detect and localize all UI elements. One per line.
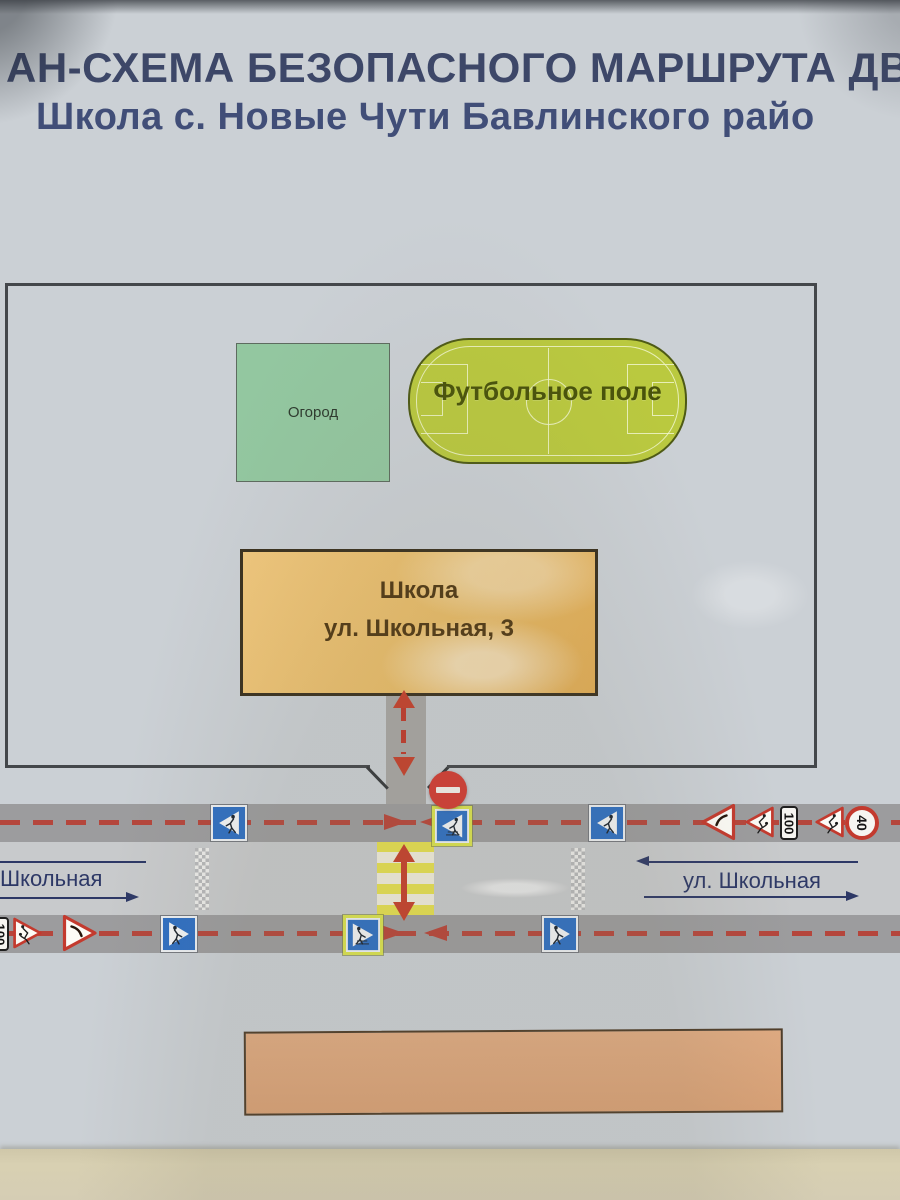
- street-arrow-right-icon: [126, 892, 139, 902]
- route-scheme-poster-photo: АН-СХЕМА БЕЗОПАСНОГО МАРШРУТА ДВ Школа с…: [0, 0, 900, 1200]
- checker-strip-right: [571, 848, 585, 910]
- distance-plate-100: 100: [0, 917, 9, 951]
- street-line-left-top: [0, 861, 146, 863]
- school-label-line2: ул. Школьная, 3: [324, 610, 514, 647]
- territory-border-left: [5, 283, 8, 768]
- football-field: Футбольное поле: [408, 338, 687, 464]
- distance-plate-value: 100: [0, 923, 8, 945]
- route-arrow-down-to-road: [393, 757, 415, 776]
- pedestrian-crossing-sign: [161, 916, 197, 952]
- territory-border-bottom-left: [5, 765, 370, 768]
- children-warning-sign: [11, 915, 47, 951]
- speed-limit-value: 40: [854, 815, 870, 831]
- speed-limit-sign-40: 40: [845, 806, 879, 840]
- crosswalk-arrow-down: [393, 902, 415, 921]
- route-dashes-lower-road: [0, 931, 900, 936]
- children-warning-sign: [810, 804, 846, 840]
- pedestrian-warning-triangle: [698, 802, 738, 842]
- route-arrow-right-upper: [384, 814, 407, 830]
- crosswalk-arrow-shaft: [401, 858, 407, 906]
- street-label-right: ул. Школьная: [683, 868, 821, 894]
- route-dashes-driveway: [401, 708, 406, 754]
- building-bottom: [244, 1028, 784, 1115]
- pedestrian-crossing-sign: [589, 805, 625, 841]
- garden-label: Огород: [288, 404, 338, 421]
- school-driveway: [386, 692, 426, 806]
- poster-title-line2: Школа с. Новые Чути Бавлинского райо: [36, 96, 815, 139]
- garden-area: Огород: [236, 343, 390, 482]
- territory-border-bottom-right: [447, 765, 817, 768]
- street-line-right-top: [648, 861, 858, 863]
- no-entry-bar: [436, 787, 460, 794]
- glare-spot: [690, 560, 810, 630]
- route-arrow-left-lower: [424, 925, 447, 941]
- street-line-left-bottom: [0, 897, 128, 899]
- territory-border-right: [814, 283, 817, 768]
- football-field-label: Футбольное поле: [410, 376, 685, 407]
- pedestrian-crossing-sign: [542, 916, 578, 952]
- pedestrian-crossing-sign: [211, 805, 247, 841]
- no-entry-sign: [429, 771, 467, 809]
- checker-strip-left: [195, 848, 209, 910]
- route-arrow-up-to-school: [393, 690, 415, 708]
- children-warning-sign: [740, 804, 776, 840]
- crosswalk-arrow-up: [393, 844, 415, 862]
- school-building: Школа ул. Школьная, 3: [240, 549, 598, 696]
- street-label-left: Школьная: [0, 866, 102, 892]
- route-arrow-right-lower: [381, 925, 404, 941]
- school-label-line1: Школа: [324, 572, 514, 609]
- distance-plate-100: 100: [780, 806, 798, 840]
- school-label: Школа ул. Школьная, 3: [324, 572, 514, 646]
- street-arrow-right-icon: [846, 891, 859, 901]
- pedestrian-warning-triangle: [60, 913, 100, 953]
- table-surface: [0, 1149, 900, 1200]
- distance-plate-value: 100: [782, 812, 797, 834]
- street-line-right-bottom: [644, 896, 848, 898]
- pedestrian-crossing-sign-yellow-border: [343, 915, 383, 955]
- poster-title-line1: АН-СХЕМА БЕЗОПАСНОГО МАРШРУТА ДВ: [6, 44, 900, 92]
- pedestrian-crossing-sign-yellow-border: [432, 806, 472, 846]
- territory-border-top: [5, 283, 817, 286]
